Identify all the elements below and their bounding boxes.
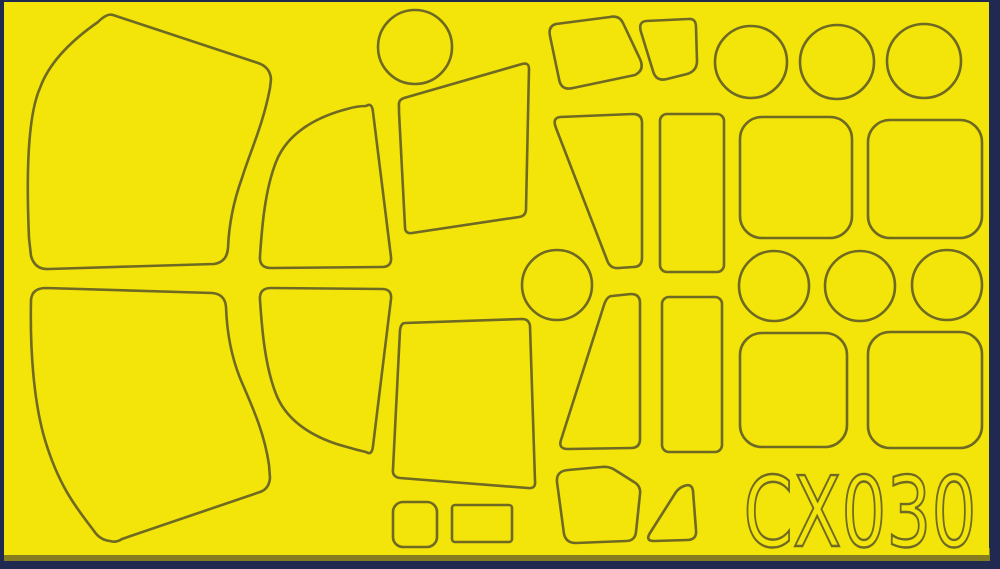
product-code-text: CX030: [744, 456, 977, 569]
mask-sheet-svg: CX030: [0, 0, 1000, 569]
mask-sheet-scan: CX030: [0, 0, 1000, 569]
